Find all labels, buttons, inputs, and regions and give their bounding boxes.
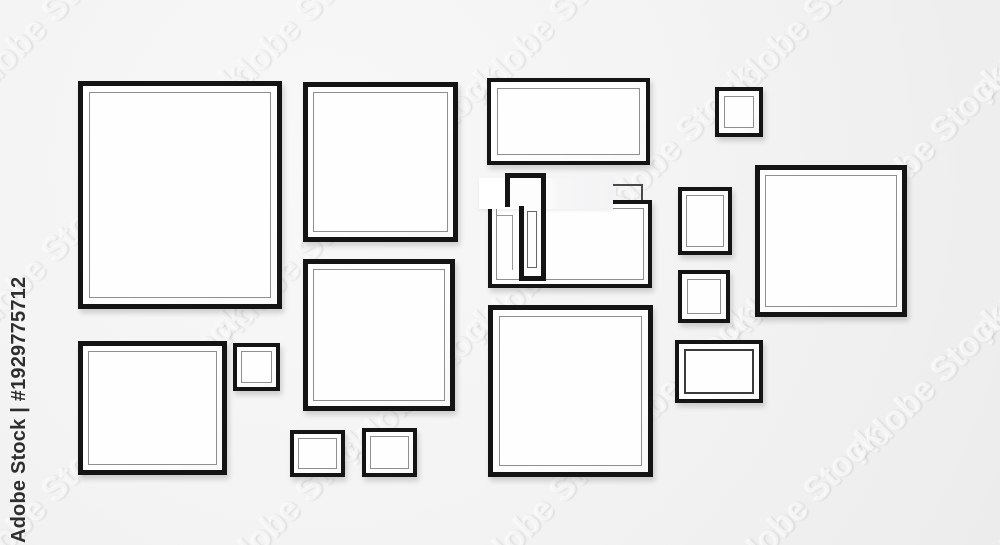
- tall-frame-bar: [519, 276, 546, 281]
- frame-large-top-left: [78, 81, 282, 309]
- frame-mat-line: [724, 96, 754, 128]
- tall-frame-bar: [505, 173, 510, 207]
- frame-mat-line: [89, 92, 271, 298]
- frame-landscape-bottom-left: [78, 341, 227, 475]
- frame-mat-line: [88, 351, 217, 465]
- cluster-inner-line-h: [497, 215, 513, 216]
- adobe-stock-watermark: Adobe Stock: [969, 178, 1000, 353]
- adobe-stock-watermark: Adobe Stock: [715, 418, 890, 545]
- tall-frame-bar: [519, 206, 524, 281]
- frame-mat-line: [686, 195, 724, 247]
- frame-mat-line: [497, 88, 640, 155]
- frame-large-square-bottom-middle: [488, 305, 653, 477]
- cluster-white-band: [479, 178, 613, 209]
- tall-frame-inner-slot: [527, 211, 537, 268]
- frame-mat-line: [499, 316, 642, 466]
- frame-mat-line: [241, 351, 272, 383]
- tall-frame-fill: [510, 178, 541, 207]
- frame-wide-top-center: [487, 78, 650, 165]
- frame-mat-line: [313, 269, 445, 401]
- gallery-wall-photo: Adobe StockAdobe StockAdobe StockAdobe S…: [0, 0, 1000, 545]
- adobe-stock-watermark: Adobe Stock: [842, 298, 1000, 473]
- frame-mat-line: [684, 349, 754, 394]
- frame-small-square-right: [678, 270, 730, 323]
- frame-mat-line: [765, 175, 897, 307]
- frame-square-top-middle: [303, 82, 458, 242]
- cluster-inner-line-v: [512, 215, 513, 270]
- frame-tiny-bottom-2: [362, 428, 417, 477]
- frame-small-portrait-right: [678, 187, 732, 255]
- frame-mat-line: [370, 436, 409, 469]
- frame-landscape-bottom-right: [675, 340, 763, 403]
- tall-frame-bar: [541, 173, 546, 281]
- frame-mat-line: [313, 92, 448, 232]
- frame-square-middle: [303, 259, 455, 411]
- adobe-stock-watermark: Adobe Stock: [969, 418, 1000, 545]
- stock-attribution-text: Adobe Stock | #1929775712: [8, 277, 31, 543]
- frame-tiny-bottom-1: [290, 430, 345, 477]
- tall-frame-bar: [505, 173, 546, 178]
- frame-mat-line: [687, 279, 721, 314]
- adobe-stock-watermark: Adobe Stock: [969, 0, 1000, 112]
- frame-mat-line: [298, 438, 337, 469]
- frame-small-square-left: [233, 343, 280, 391]
- frame-small-square-top-right: [715, 87, 763, 137]
- frame-large-square-right: [755, 165, 907, 317]
